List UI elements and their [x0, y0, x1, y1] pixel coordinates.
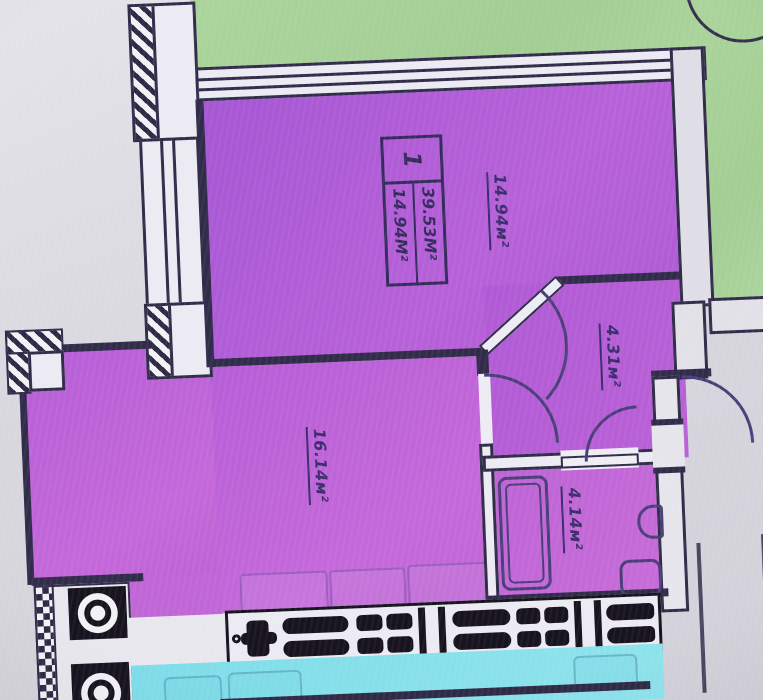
lower-unit-shape — [164, 675, 223, 700]
knob-circle — [232, 634, 241, 643]
symbol-dot — [516, 608, 541, 625]
symbol-dot — [387, 636, 414, 653]
symbol-bar — [452, 609, 511, 627]
bathroom-area-label: 4.14м² — [560, 485, 586, 552]
stairwell-line — [696, 543, 706, 693]
wall-pillar — [144, 301, 213, 380]
hatched-column — [130, 6, 160, 139]
symbol-dot — [638, 603, 655, 620]
symbol-dot — [356, 614, 383, 631]
symbol-dot — [545, 629, 570, 646]
symbol-bar — [282, 616, 349, 635]
symbol-block — [241, 632, 277, 645]
window-glass-line — [160, 141, 170, 303]
corner-pillar-block — [28, 350, 66, 391]
slab-band — [127, 614, 231, 668]
wall-green-bottom — [708, 295, 763, 334]
symbol-divider — [574, 601, 583, 649]
symbol-dot — [386, 613, 413, 630]
ventilation-shaft-symbol — [68, 586, 128, 640]
symbol-divider — [594, 600, 603, 648]
wall-stub — [476, 350, 489, 376]
symbol-bar — [283, 639, 350, 658]
unit-living-area: 14.94М² — [385, 184, 416, 284]
living-room-area-label: 14.94м² — [486, 171, 512, 250]
symbol-bar — [453, 632, 512, 650]
bathtub-symbol — [497, 475, 552, 591]
floor-plan-photo: 1 39.53М² 14.94М² 14.94м² 16.14м² 4.31м²… — [0, 0, 763, 700]
symbol-dot — [544, 606, 569, 623]
bathtub-inner-line — [505, 482, 545, 583]
symbol-dot — [639, 626, 656, 643]
unit-areas: 39.53М² 14.94М² — [385, 182, 445, 283]
unit-stamp: 1 39.53М² 14.94М² — [380, 134, 448, 286]
vent-ring — [93, 685, 109, 700]
symbol-dot — [517, 631, 542, 648]
symbol-divider — [438, 607, 447, 655]
unit-total-area: 39.53М² — [412, 182, 445, 282]
symbol-dot — [357, 637, 384, 654]
symbol-divider — [418, 607, 427, 655]
hallway-area-label: 4.31м² — [599, 323, 625, 390]
wall-pillar — [127, 1, 201, 142]
bedroom-area-label: 16.14м² — [306, 426, 332, 505]
ventilation-shaft-symbol — [71, 662, 131, 700]
window-glass-line — [172, 140, 182, 302]
window-left — [139, 136, 206, 306]
plan-canvas: 1 39.53М² 14.94М² 14.94м² 16.14м² 4.31м²… — [0, 0, 763, 700]
unit-number: 1 — [383, 137, 441, 184]
